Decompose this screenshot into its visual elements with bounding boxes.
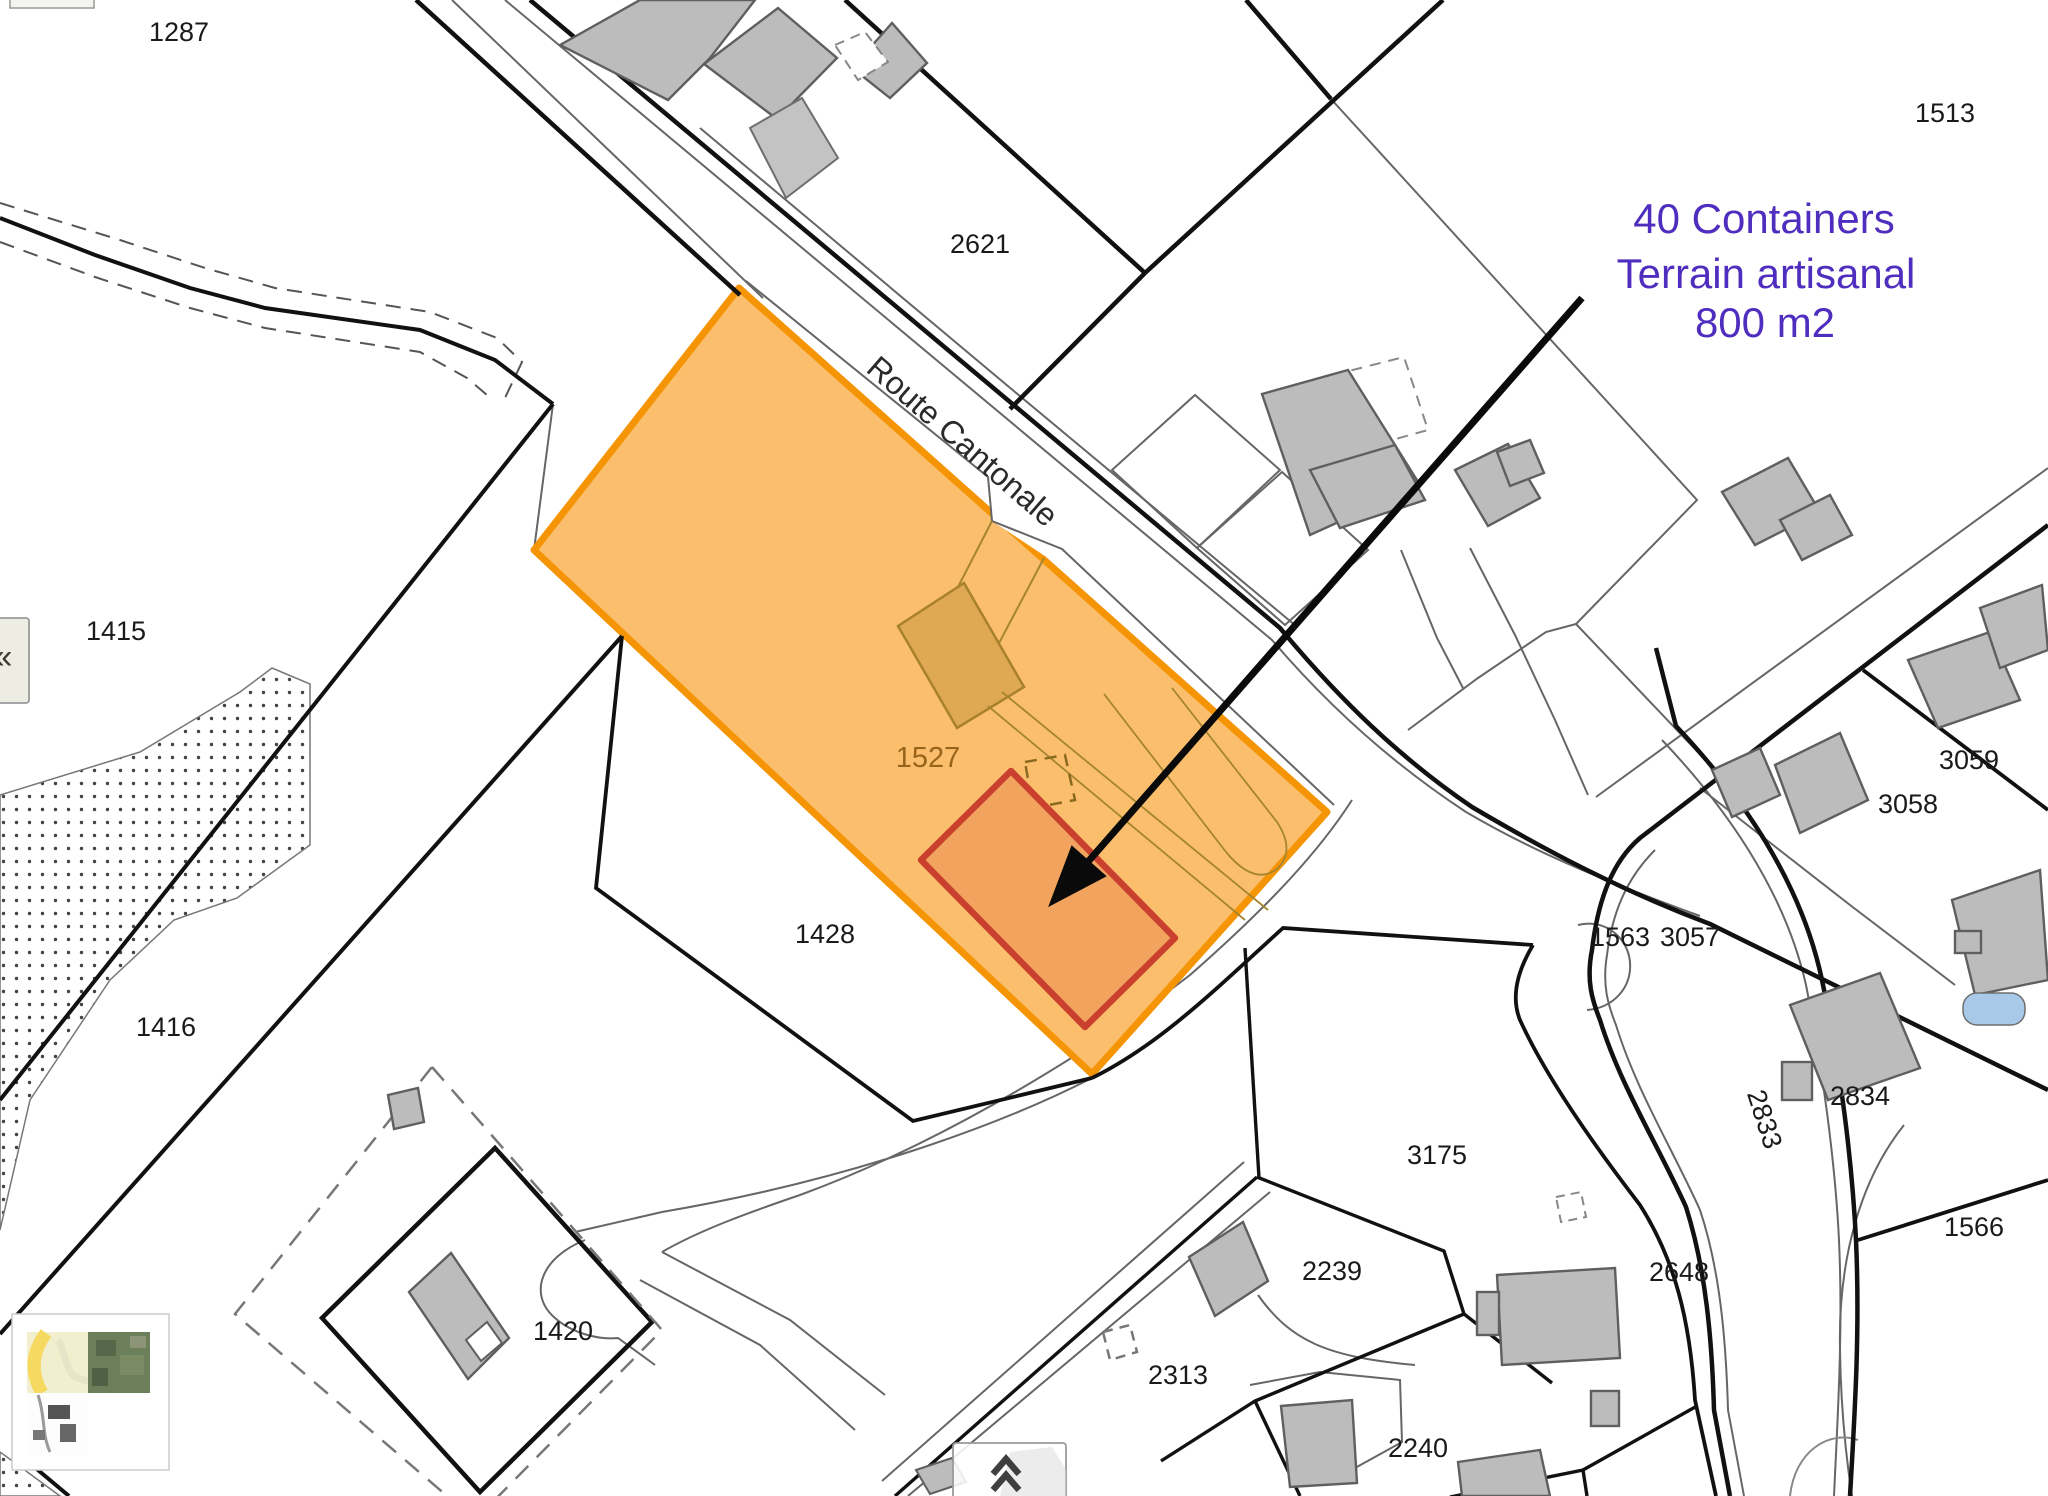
svg-text:1416: 1416 — [136, 1012, 196, 1042]
svg-text:2239: 2239 — [1302, 1256, 1362, 1286]
svg-text:Terrain artisanal: Terrain artisanal — [1617, 250, 1916, 297]
svg-text:2834: 2834 — [1830, 1081, 1890, 1111]
svg-text:3175: 3175 — [1407, 1140, 1467, 1170]
svg-text:1420: 1420 — [533, 1316, 593, 1346]
svg-text:3057: 3057 — [1660, 922, 1720, 952]
svg-text:1428: 1428 — [795, 919, 855, 949]
svg-text:1513: 1513 — [1915, 98, 1975, 128]
svg-text:800 m2: 800 m2 — [1695, 299, 1835, 346]
svg-text:«: « — [0, 638, 12, 676]
svg-text:2621: 2621 — [950, 229, 1010, 259]
svg-text:2240: 2240 — [1388, 1433, 1448, 1463]
svg-text:3059: 3059 — [1939, 745, 1999, 775]
svg-text:1563: 1563 — [1590, 922, 1650, 952]
svg-text:40 Containers: 40 Containers — [1633, 195, 1895, 242]
svg-text:3058: 3058 — [1878, 789, 1938, 819]
svg-text:1415: 1415 — [86, 616, 146, 646]
svg-text:1287: 1287 — [149, 17, 209, 47]
svg-text:2313: 2313 — [1148, 1360, 1208, 1390]
svg-text:1527: 1527 — [896, 742, 961, 774]
svg-text:1566: 1566 — [1944, 1212, 2004, 1242]
svg-text:2648: 2648 — [1649, 1257, 1709, 1287]
